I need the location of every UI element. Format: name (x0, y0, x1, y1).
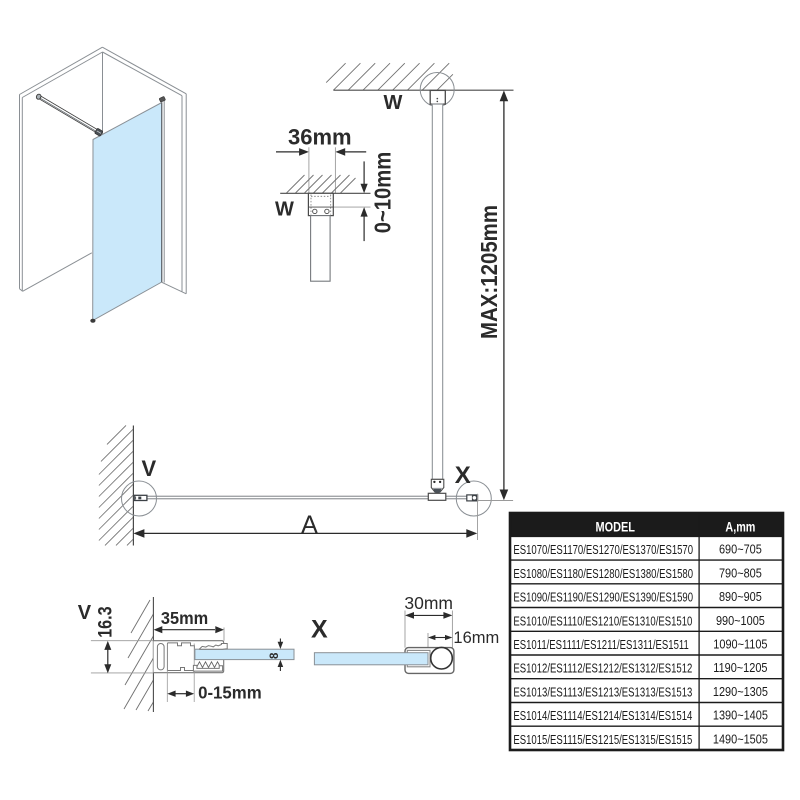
svg-text:W: W (384, 92, 403, 114)
svg-text:A,mm: A,mm (725, 520, 755, 535)
svg-text:ES1080/ES1180/ES1280/ES1380/ES: ES1080/ES1180/ES1280/ES1380/ES1580 (513, 568, 693, 582)
svg-text:1090~1105: 1090~1105 (713, 638, 768, 652)
svg-text:ES1012/ES1112/ES1212/ES1312/ES: ES1012/ES1112/ES1212/ES1312/ES1512 (513, 662, 692, 676)
svg-text:ES1070/ES1170/ES1270/ES1370/ES: ES1070/ES1170/ES1270/ES1370/ES1570 (513, 544, 693, 558)
svg-text:1390~1405: 1390~1405 (713, 709, 768, 723)
svg-text:0-15mm: 0-15mm (198, 682, 262, 703)
svg-text:30mm: 30mm (404, 593, 453, 613)
svg-text:16mm: 16mm (453, 629, 499, 647)
svg-text:0~10mm: 0~10mm (369, 152, 396, 234)
svg-text:990~1005: 990~1005 (716, 614, 765, 628)
svg-text:ES1010/ES1110/ES1210/ES1310/ES: ES1010/ES1110/ES1210/ES1310/ES1510 (513, 615, 692, 629)
svg-text:ES1013/ES1113/ES1213/ES1313/ES: ES1013/ES1113/ES1213/ES1313/ES1513 (513, 686, 692, 700)
svg-text:A: A (301, 511, 318, 539)
svg-text:36mm: 36mm (288, 125, 352, 150)
svg-text:ES1014/ES1114/ES1214/ES1314/ES: ES1014/ES1114/ES1214/ES1314/ES1514 (513, 710, 692, 724)
svg-text:1290~1305: 1290~1305 (713, 685, 768, 699)
svg-text:V: V (142, 456, 157, 481)
svg-text:ES1090/ES1190/ES1290/ES1390/ES: ES1090/ES1190/ES1290/ES1390/ES1590 (513, 591, 693, 605)
svg-text:16.3: 16.3 (94, 606, 116, 638)
svg-text:ES1015/ES1115/ES1215/ES1315/ES: ES1015/ES1115/ES1215/ES1315/ES1515 (513, 734, 692, 748)
svg-text:V: V (78, 602, 92, 624)
svg-text:690~705: 690~705 (719, 543, 762, 557)
svg-text:790~805: 790~805 (719, 567, 762, 581)
svg-text:1190~1205: 1190~1205 (713, 662, 768, 676)
svg-text:W: W (275, 199, 294, 221)
svg-text:35mm: 35mm (161, 607, 208, 628)
svg-text:8: 8 (269, 652, 281, 659)
svg-text:ES1011/ES1111/ES1211/ES1311/ES: ES1011/ES1111/ES1211/ES1311/ES1511 (513, 639, 688, 653)
svg-text:X: X (311, 616, 328, 644)
svg-text:890~905: 890~905 (719, 590, 762, 604)
svg-text:X: X (455, 462, 471, 489)
svg-text:MAX:1205mm: MAX:1205mm (476, 205, 503, 339)
svg-text:MODEL: MODEL (595, 520, 635, 535)
svg-text:1490~1505: 1490~1505 (713, 733, 768, 747)
